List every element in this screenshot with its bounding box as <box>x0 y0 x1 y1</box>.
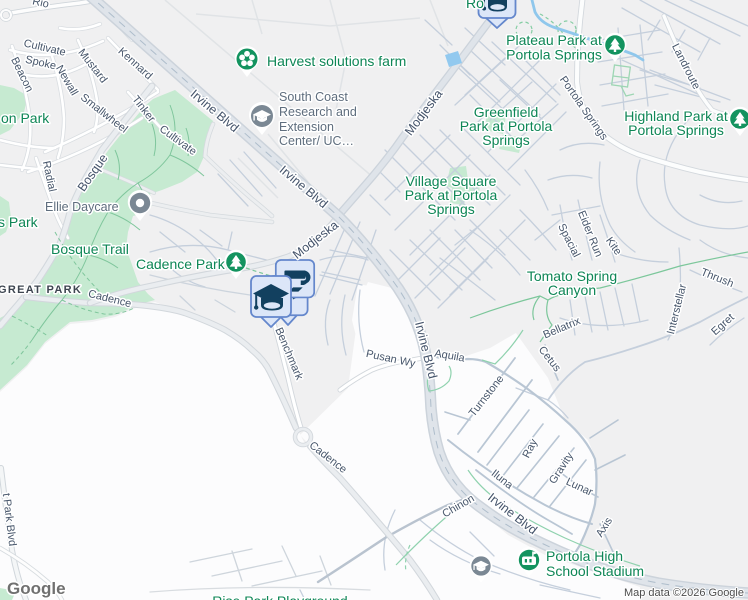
svg-text:Canyon: Canyon <box>548 282 596 298</box>
svg-text:Rise Park Playground: Rise Park Playground <box>212 593 347 600</box>
svg-text:Portola High: Portola High <box>546 548 623 564</box>
svg-text:Map data ©2026 Google: Map data ©2026 Google <box>624 587 744 599</box>
svg-text:Springs: Springs <box>482 132 529 148</box>
svg-text:s Park: s Park <box>0 214 39 230</box>
svg-text:Research and: Research and <box>279 105 357 119</box>
svg-text:Portola Springs: Portola Springs <box>506 47 602 63</box>
svg-text:Bosque Trail: Bosque Trail <box>51 241 129 257</box>
svg-text:Portola Springs: Portola Springs <box>628 122 724 138</box>
svg-text:Harvest solutions farm: Harvest solutions farm <box>267 53 406 69</box>
svg-text:Springs: Springs <box>427 201 474 217</box>
svg-text:Extension: Extension <box>279 120 334 134</box>
svg-text:Ellie Daycare: Ellie Daycare <box>45 200 119 214</box>
svg-text:Ro: Ro <box>466 0 484 11</box>
svg-text:Cadence Park: Cadence Park <box>136 256 226 272</box>
svg-text:GREAT PARK: GREAT PARK <box>0 284 82 296</box>
svg-text:Google: Google <box>7 579 66 598</box>
svg-text:School Stadium: School Stadium <box>546 563 644 579</box>
svg-text:Center/ UC…: Center/ UC… <box>279 134 354 148</box>
svg-text:on Park: on Park <box>1 110 50 126</box>
svg-text:South Coast: South Coast <box>279 90 348 104</box>
